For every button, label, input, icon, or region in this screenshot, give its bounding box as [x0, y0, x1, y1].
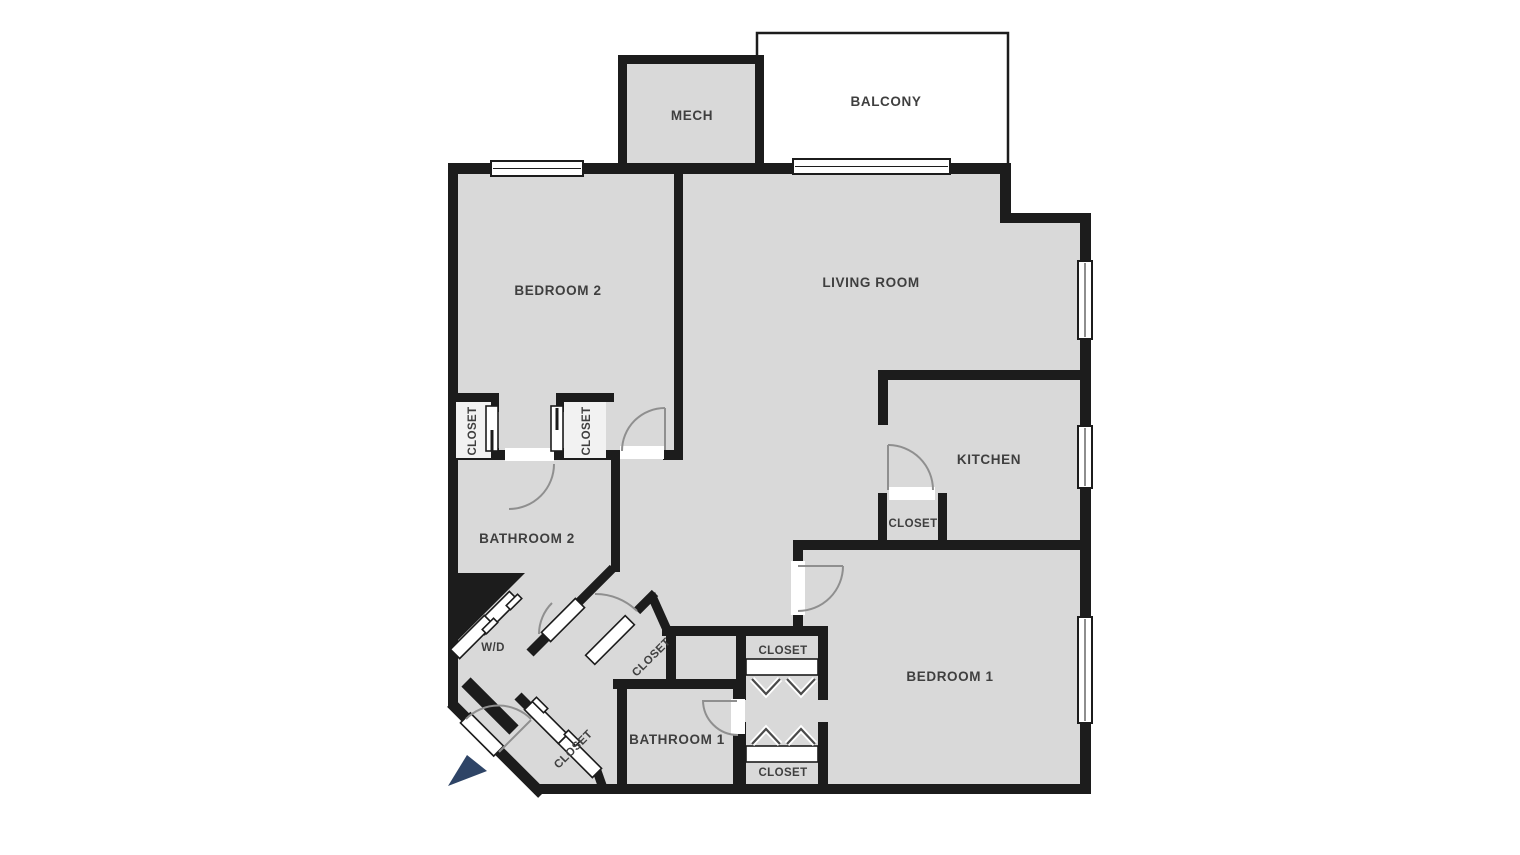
- wall-closet-n-left: [736, 636, 746, 700]
- label-balcony: BALCONY: [851, 94, 922, 109]
- wall-closet-cluster-top: [662, 626, 828, 636]
- kitchen-window: [1078, 426, 1092, 488]
- living-room-window: [1078, 261, 1092, 339]
- label-kitchen: KITCHEN: [957, 452, 1021, 467]
- label-closet-b1-south: CLOSET: [758, 767, 807, 779]
- mech-wall-left: [618, 55, 627, 169]
- label-closet-b2-right: CLOSET: [581, 406, 593, 455]
- label-closet-kitchen: CLOSET: [888, 518, 937, 530]
- wall-hallcloset-right: [666, 630, 676, 685]
- wall-stub: [597, 771, 603, 788]
- label-closet-b2-left: CLOSET: [467, 406, 479, 455]
- label-wd: W/D: [481, 642, 505, 654]
- main-floor-area: [453, 169, 1085, 789]
- label-bathroom1: BATHROOM 1: [629, 732, 725, 747]
- wall-bathroom2-right: [611, 450, 620, 572]
- wall-bathroom1-top: [613, 679, 743, 689]
- balcony-sliding-door: [793, 159, 950, 174]
- floorplan-svg: BALCONY MECH BEDROOM 2 LIVING ROOM KITCH…: [0, 0, 1520, 855]
- wall-kitchencloset-right: [938, 493, 947, 550]
- wall-bedroom1-west-lower: [793, 613, 803, 636]
- wall-closet-n-right: [818, 636, 828, 700]
- label-livingroom: LIVING ROOM: [822, 275, 919, 290]
- label-bedroom1: BEDROOM 1: [906, 669, 993, 684]
- mech-wall-top: [618, 55, 764, 64]
- wall-bedroom2-living: [674, 163, 683, 455]
- label-mech: MECH: [671, 108, 713, 123]
- label-bathroom2: BATHROOM 2: [479, 531, 575, 546]
- bedroom1-window: [1078, 617, 1092, 723]
- wall-b2closet-right-top: [556, 393, 614, 402]
- bedroom2-window: [491, 161, 583, 176]
- entry-direction-marker: [448, 755, 487, 786]
- wall-kitchen-top: [878, 370, 1091, 380]
- wall-segment: [663, 450, 683, 460]
- label-closet-b1-north: CLOSET: [758, 645, 807, 657]
- label-bedroom2: BEDROOM 2: [514, 283, 601, 298]
- floorplan-canvas: BALCONY MECH BEDROOM 2 LIVING ROOM KITCH…: [0, 0, 1520, 855]
- mech-wall-right: [755, 55, 764, 169]
- wall-closet-s-right: [818, 722, 828, 789]
- closet-slider: [486, 406, 498, 451]
- wall-step-horizontal: [1000, 213, 1091, 223]
- wall-kitchencloset-left: [878, 493, 887, 550]
- wall-kitchen-stub: [878, 370, 888, 425]
- wall-bathroom1-left: [617, 682, 627, 789]
- closet-slider: [551, 406, 563, 451]
